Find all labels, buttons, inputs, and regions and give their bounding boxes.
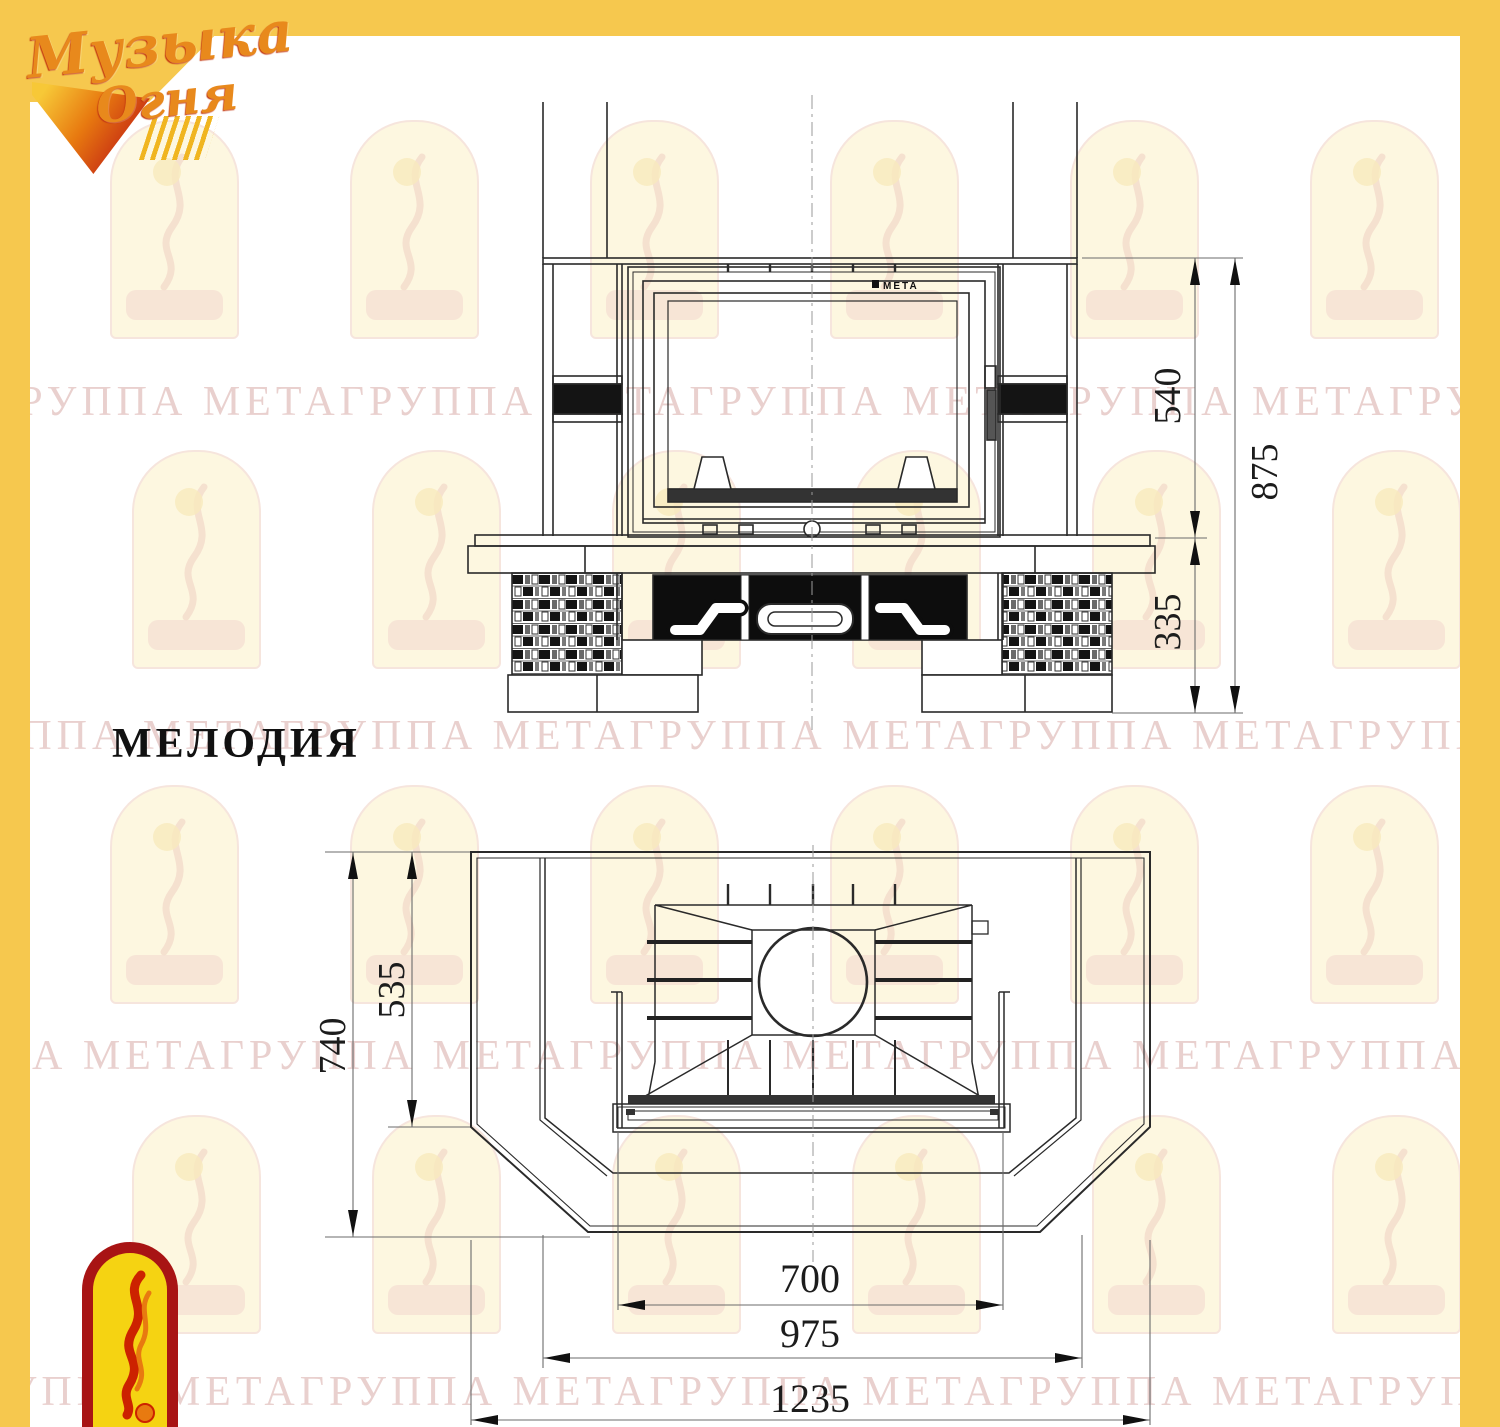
watermark-arch-icon — [110, 785, 239, 1004]
chimney — [543, 102, 1077, 258]
firebird-emblem — [82, 1242, 178, 1427]
dim-540: 540 — [1147, 368, 1189, 425]
base — [508, 573, 1112, 712]
plan-dimension-arrows — [348, 853, 1149, 1425]
watermark-arch-icon — [1310, 120, 1439, 339]
firebox-insert — [628, 267, 1000, 537]
watermark-arch-icon — [1310, 785, 1439, 1004]
frame-left-border — [0, 0, 30, 1427]
page: ГРУППА МЕТАГРУППА МЕТАГРУППА МЕТАГРУППА … — [0, 0, 1500, 1427]
watermark-arch-icon — [1332, 450, 1461, 669]
left-plinth — [508, 675, 698, 712]
dim-335: 335 — [1147, 594, 1189, 651]
dim-740: 740 — [312, 1018, 354, 1075]
dim-1235: 1235 — [770, 1376, 850, 1421]
company-logo: Музыка Огня — [18, 4, 318, 184]
left-andiron — [694, 457, 731, 489]
plan-view-drawing: 740 535 700 975 1235 — [300, 838, 1310, 1427]
frame-right-border — [1460, 0, 1500, 1427]
model-title: МЕЛОДИЯ — [112, 720, 361, 768]
right-pedestal — [1002, 573, 1112, 675]
dim-975: 975 — [780, 1311, 840, 1356]
dim-535: 535 — [371, 962, 413, 1019]
front-elevation-drawing: МЕТА 540 875 335 — [430, 85, 1310, 735]
insert-brand-label: МЕТА — [883, 281, 919, 292]
front-dimension-arrows — [1190, 259, 1240, 712]
left-pedestal — [512, 573, 622, 675]
dim-875: 875 — [1244, 444, 1286, 501]
plan-structure — [471, 852, 1150, 1232]
watermark-arch-icon — [132, 450, 261, 669]
outer-wall — [471, 852, 1150, 1232]
insert-plan — [613, 884, 1010, 1132]
watermark-arch-icon — [1332, 1115, 1461, 1334]
right-plinth — [922, 675, 1112, 712]
plan-dimension-lines — [325, 852, 1150, 1425]
right-column — [998, 264, 1077, 536]
left-column — [543, 264, 622, 536]
dim-700: 700 — [780, 1256, 840, 1301]
right-andiron — [898, 457, 935, 489]
door-handle — [985, 366, 996, 388]
